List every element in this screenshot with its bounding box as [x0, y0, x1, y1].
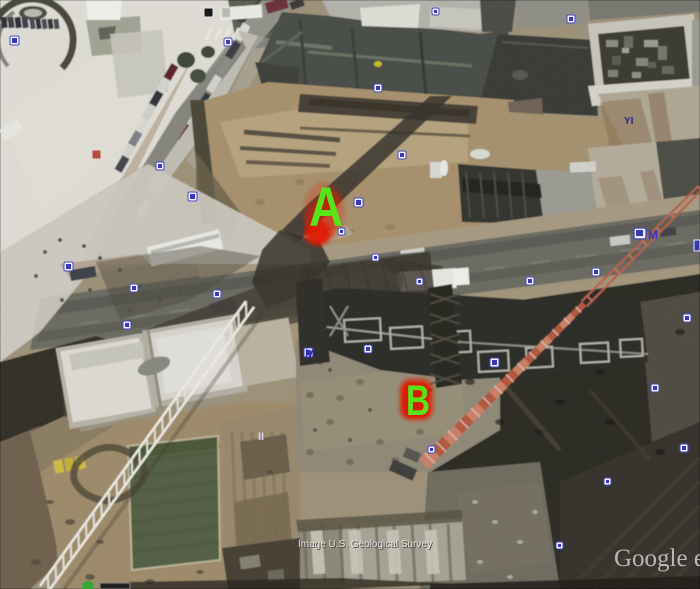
svg-text:Google e: Google e — [614, 545, 700, 572]
svg-text:II: II — [258, 431, 264, 443]
svg-text:ΥΙ: ΥΙ — [624, 116, 634, 127]
svg-text:B: B — [406, 377, 430, 425]
svg-text:Image U.S. Geological Survey: Image U.S. Geological Survey — [298, 539, 432, 550]
svg-text:M: M — [648, 228, 658, 242]
svg-text:Μ: Μ — [305, 347, 315, 361]
